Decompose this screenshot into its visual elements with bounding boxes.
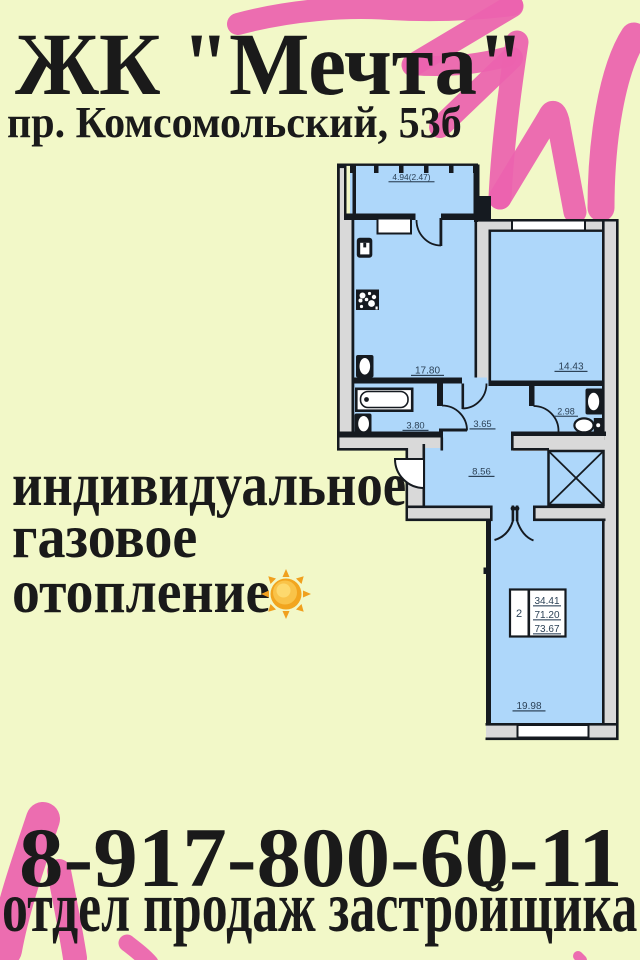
svg-text:2.98: 2.98 xyxy=(557,407,575,417)
svg-text:2: 2 xyxy=(516,608,522,620)
svg-text:3.80: 3.80 xyxy=(406,420,424,431)
svg-text:3.65: 3.65 xyxy=(473,418,491,429)
svg-text:4.94(2.47): 4.94(2.47) xyxy=(392,172,430,182)
